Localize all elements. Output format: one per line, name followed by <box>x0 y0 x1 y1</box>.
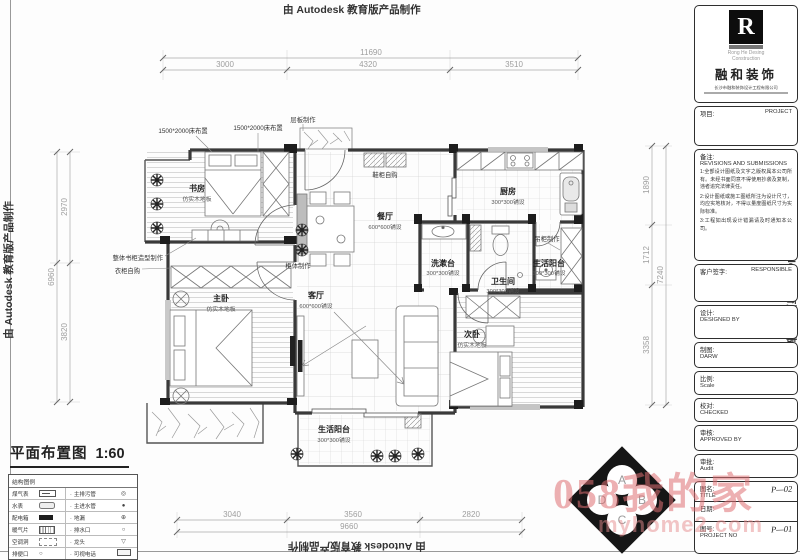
company-logo: R <box>729 10 763 44</box>
plan-title: 平面布置图1:60 <box>10 442 129 468</box>
legend-label-gas-meter: 煤气表 <box>9 490 39 498</box>
scale-label: 比例: <box>700 374 792 383</box>
radiator-symbol <box>39 526 55 534</box>
annotation-hanging: 吊柜制作 <box>534 234 560 243</box>
dim-right-2: 1712 <box>642 246 651 264</box>
legend-label-floor-drain: 地漏 <box>66 514 110 522</box>
legend-label-main-drain: 主排污管 <box>66 490 110 498</box>
room-living: 客厅 <box>307 290 324 300</box>
sheet-number: P—02 <box>771 484 793 495</box>
company-subline <box>704 92 788 95</box>
legend-label-water-meter: 水表 <box>9 502 39 510</box>
plan-title-name: 平面布置图 <box>10 446 88 462</box>
dim-right-3: 3358 <box>642 336 651 354</box>
gas-meter-symbol <box>39 490 56 497</box>
dim-right-1: 1890 <box>642 176 651 194</box>
ac-hole-symbol <box>39 538 57 546</box>
annotation-wardrobe: 衣柜自购 <box>115 266 140 275</box>
drain-outlet-symbol: ○ <box>110 527 137 533</box>
annotation-bookcase: 整体书柜造型制作 <box>113 253 164 262</box>
room-second: 次卧 <box>464 329 480 339</box>
designed-label: 设计: <box>700 308 792 317</box>
field-checked: 校对: CHECKED <box>694 398 798 422</box>
dim-bottom-1: 3040 <box>223 510 241 519</box>
logo-strip <box>729 45 763 49</box>
site-watermark-url: myhome2.com <box>598 512 763 538</box>
remarks-label: 备注: <box>700 152 792 161</box>
room-kitchen: 厨房 <box>500 186 516 196</box>
room-dining: 餐厅 <box>376 211 393 221</box>
legend-row: 煤气表 主排污管 ◎ <box>9 488 137 500</box>
company-name-en: Rong He Desing Construction <box>700 51 792 63</box>
toilet-outlet-symbol: ○ <box>39 551 43 557</box>
annotation-cabinet: 柜体制作 <box>285 261 311 270</box>
room-balcony-bottom: 生活阳台 <box>318 424 350 434</box>
field-designed: 设计: DESIGNED BY <box>694 305 798 339</box>
room-dining-floor: 600*600铺设 <box>368 223 401 231</box>
remarks-note-3: 3:工程如出现设计错漏请及时通知本公司。 <box>700 218 792 233</box>
main-drain-symbol: ◎ <box>110 490 137 497</box>
signature-value: RESPONSIBLE <box>751 267 792 273</box>
dim-bottom-2: 3560 <box>344 510 362 519</box>
field-scale: 比例: Scale <box>694 371 798 395</box>
structure-legend: 结构图例 煤气表 主排污管 ◎ 水表 主进水管 ● 配电箱 地漏 ⊕ 暖气片 排… <box>8 474 138 560</box>
checked-value: CHECKED <box>700 410 792 416</box>
floor-drain-symbol: ⊕ <box>110 514 137 521</box>
legend-label-radiator: 暖气片 <box>9 526 39 534</box>
legend-label-water-inlet: 主进水管 <box>66 502 110 510</box>
dim-top-2: 4320 <box>359 60 377 69</box>
room-master: 主卧 <box>213 293 229 303</box>
field-signature: 客户签字: RESPONSIBLE <box>694 264 798 302</box>
legend-header: 结构图例 <box>9 475 137 488</box>
project-value: PROJECT <box>765 109 792 115</box>
legend-label-toilet-outlet: 排便口 <box>9 550 39 558</box>
remarks-note-1: 1:全部设计图纸及文字之版权属本公司所有。未经书面同意不得使用抄袭及复制，违者追… <box>700 169 792 192</box>
legend-row: 空调洞 龙头 ▽ <box>9 536 137 548</box>
distribution-box-symbol <box>39 515 53 520</box>
dim-right-total: 7240 <box>656 266 665 284</box>
legend-label-dist-box: 配电箱 <box>9 514 39 522</box>
water-meter-symbol <box>39 502 55 509</box>
room-study-floor: 仿实木地板 <box>183 195 212 203</box>
field-remarks: 备注: REVISIONS AND SUBMISSIONS 1:全部设计图纸及文… <box>694 149 798 261</box>
signature-label: 客户签字: <box>700 267 727 276</box>
legend-row: 暖气片 排水口 ○ <box>9 524 137 536</box>
dim-bottom-total: 9660 <box>340 522 358 531</box>
floorplan-sheet: { "stamps": { "top": "由 Autodesk 教育版产品制作… <box>0 0 800 560</box>
room-second-floor: 仿实木地板 <box>458 341 487 349</box>
legend-label-drain-outlet: 排水口 <box>66 526 110 534</box>
annotation-bed1: 1500*2000床布置 <box>158 126 207 135</box>
legend-row: 配电箱 地漏 ⊕ <box>9 512 137 524</box>
room-wash-floor: 300*300铺设 <box>426 269 459 277</box>
room-kitchen-floor: 300*300铺设 <box>491 198 524 206</box>
dim-left-total: 6960 <box>47 268 56 286</box>
room-bath-floor: 300*300铺设 <box>486 287 519 295</box>
dim-top-1: 3000 <box>216 60 234 69</box>
room-master-floor: 仿实木地板 <box>207 305 236 313</box>
logo-letter: R <box>737 15 754 39</box>
room-bath: 卫生间 <box>491 276 515 286</box>
company-name-cn: 长沙市融和装饰设计工程有限公司 <box>704 85 789 91</box>
dim-left-1: 2970 <box>60 198 69 216</box>
room-balcony-bottom-floor: 300*300铺设 <box>317 436 350 444</box>
project-no-number: P—01 <box>771 524 793 535</box>
dim-top-total: 11690 <box>360 48 382 57</box>
legend-row: 水表 主进水管 ● <box>9 500 137 512</box>
drawn-value: DARW <box>700 354 792 360</box>
room-balcony-side: 生活阳台 <box>533 258 565 268</box>
legend-label-ac-hole: 空调洞 <box>9 538 39 546</box>
field-project: 项目: PROJECT <box>694 106 798 146</box>
dim-left-2: 3820 <box>60 323 69 341</box>
dim-bottom-3: 2820 <box>462 510 480 519</box>
remarks-subtitle: REVISIONS AND SUBMISSIONS <box>700 161 792 167</box>
annotation-bed2: 1500*2000床布置 <box>233 123 282 132</box>
room-wash: 洗漱台 <box>431 258 455 268</box>
field-approved: 审核: APPROVED BY <box>694 425 798 451</box>
brand-name: 融和装饰 <box>700 64 792 83</box>
field-drawn: 制图: DARW <box>694 342 798 368</box>
water-inlet-symbol: ● <box>110 503 137 509</box>
legend-row: 排便口 ○ 可视电话 <box>9 548 137 559</box>
room-study: 书房 <box>189 183 205 193</box>
legend-label-faucet: 龙头 <box>66 538 110 546</box>
plan-scale: 1:60 <box>96 446 125 462</box>
faucet-symbol: ▽ <box>110 538 137 545</box>
room-balcony-side-floor: 300*300铺设 <box>532 269 565 277</box>
video-phone-symbol <box>117 549 131 556</box>
approved-label: 审核: <box>700 428 792 437</box>
drawn-label: 制图: <box>700 345 792 354</box>
checked-label: 校对: <box>700 401 792 410</box>
scale-value: Scale <box>700 383 792 389</box>
annotation-shoe: 鞋柜自购 <box>372 170 397 179</box>
dim-top-3: 3510 <box>505 60 523 69</box>
annotation-shelf: 层板制作 <box>290 115 316 124</box>
remarks-note-2: 2:设计图纸或施工图纸所注为设计尺寸，均应实地核对，不得以量度图纸尺寸为实际标准… <box>700 194 792 217</box>
legend-label-video-phone: 可视电话 <box>66 550 110 558</box>
designed-value: DESIGNED BY <box>700 317 792 323</box>
company-header: R Rong He Desing Construction 融和装饰 长沙市融和… <box>694 5 798 103</box>
approved-value: APPROVED BY <box>700 437 792 443</box>
room-living-floor: 600*600铺设 <box>299 302 332 310</box>
project-label: 项目: <box>700 109 714 118</box>
